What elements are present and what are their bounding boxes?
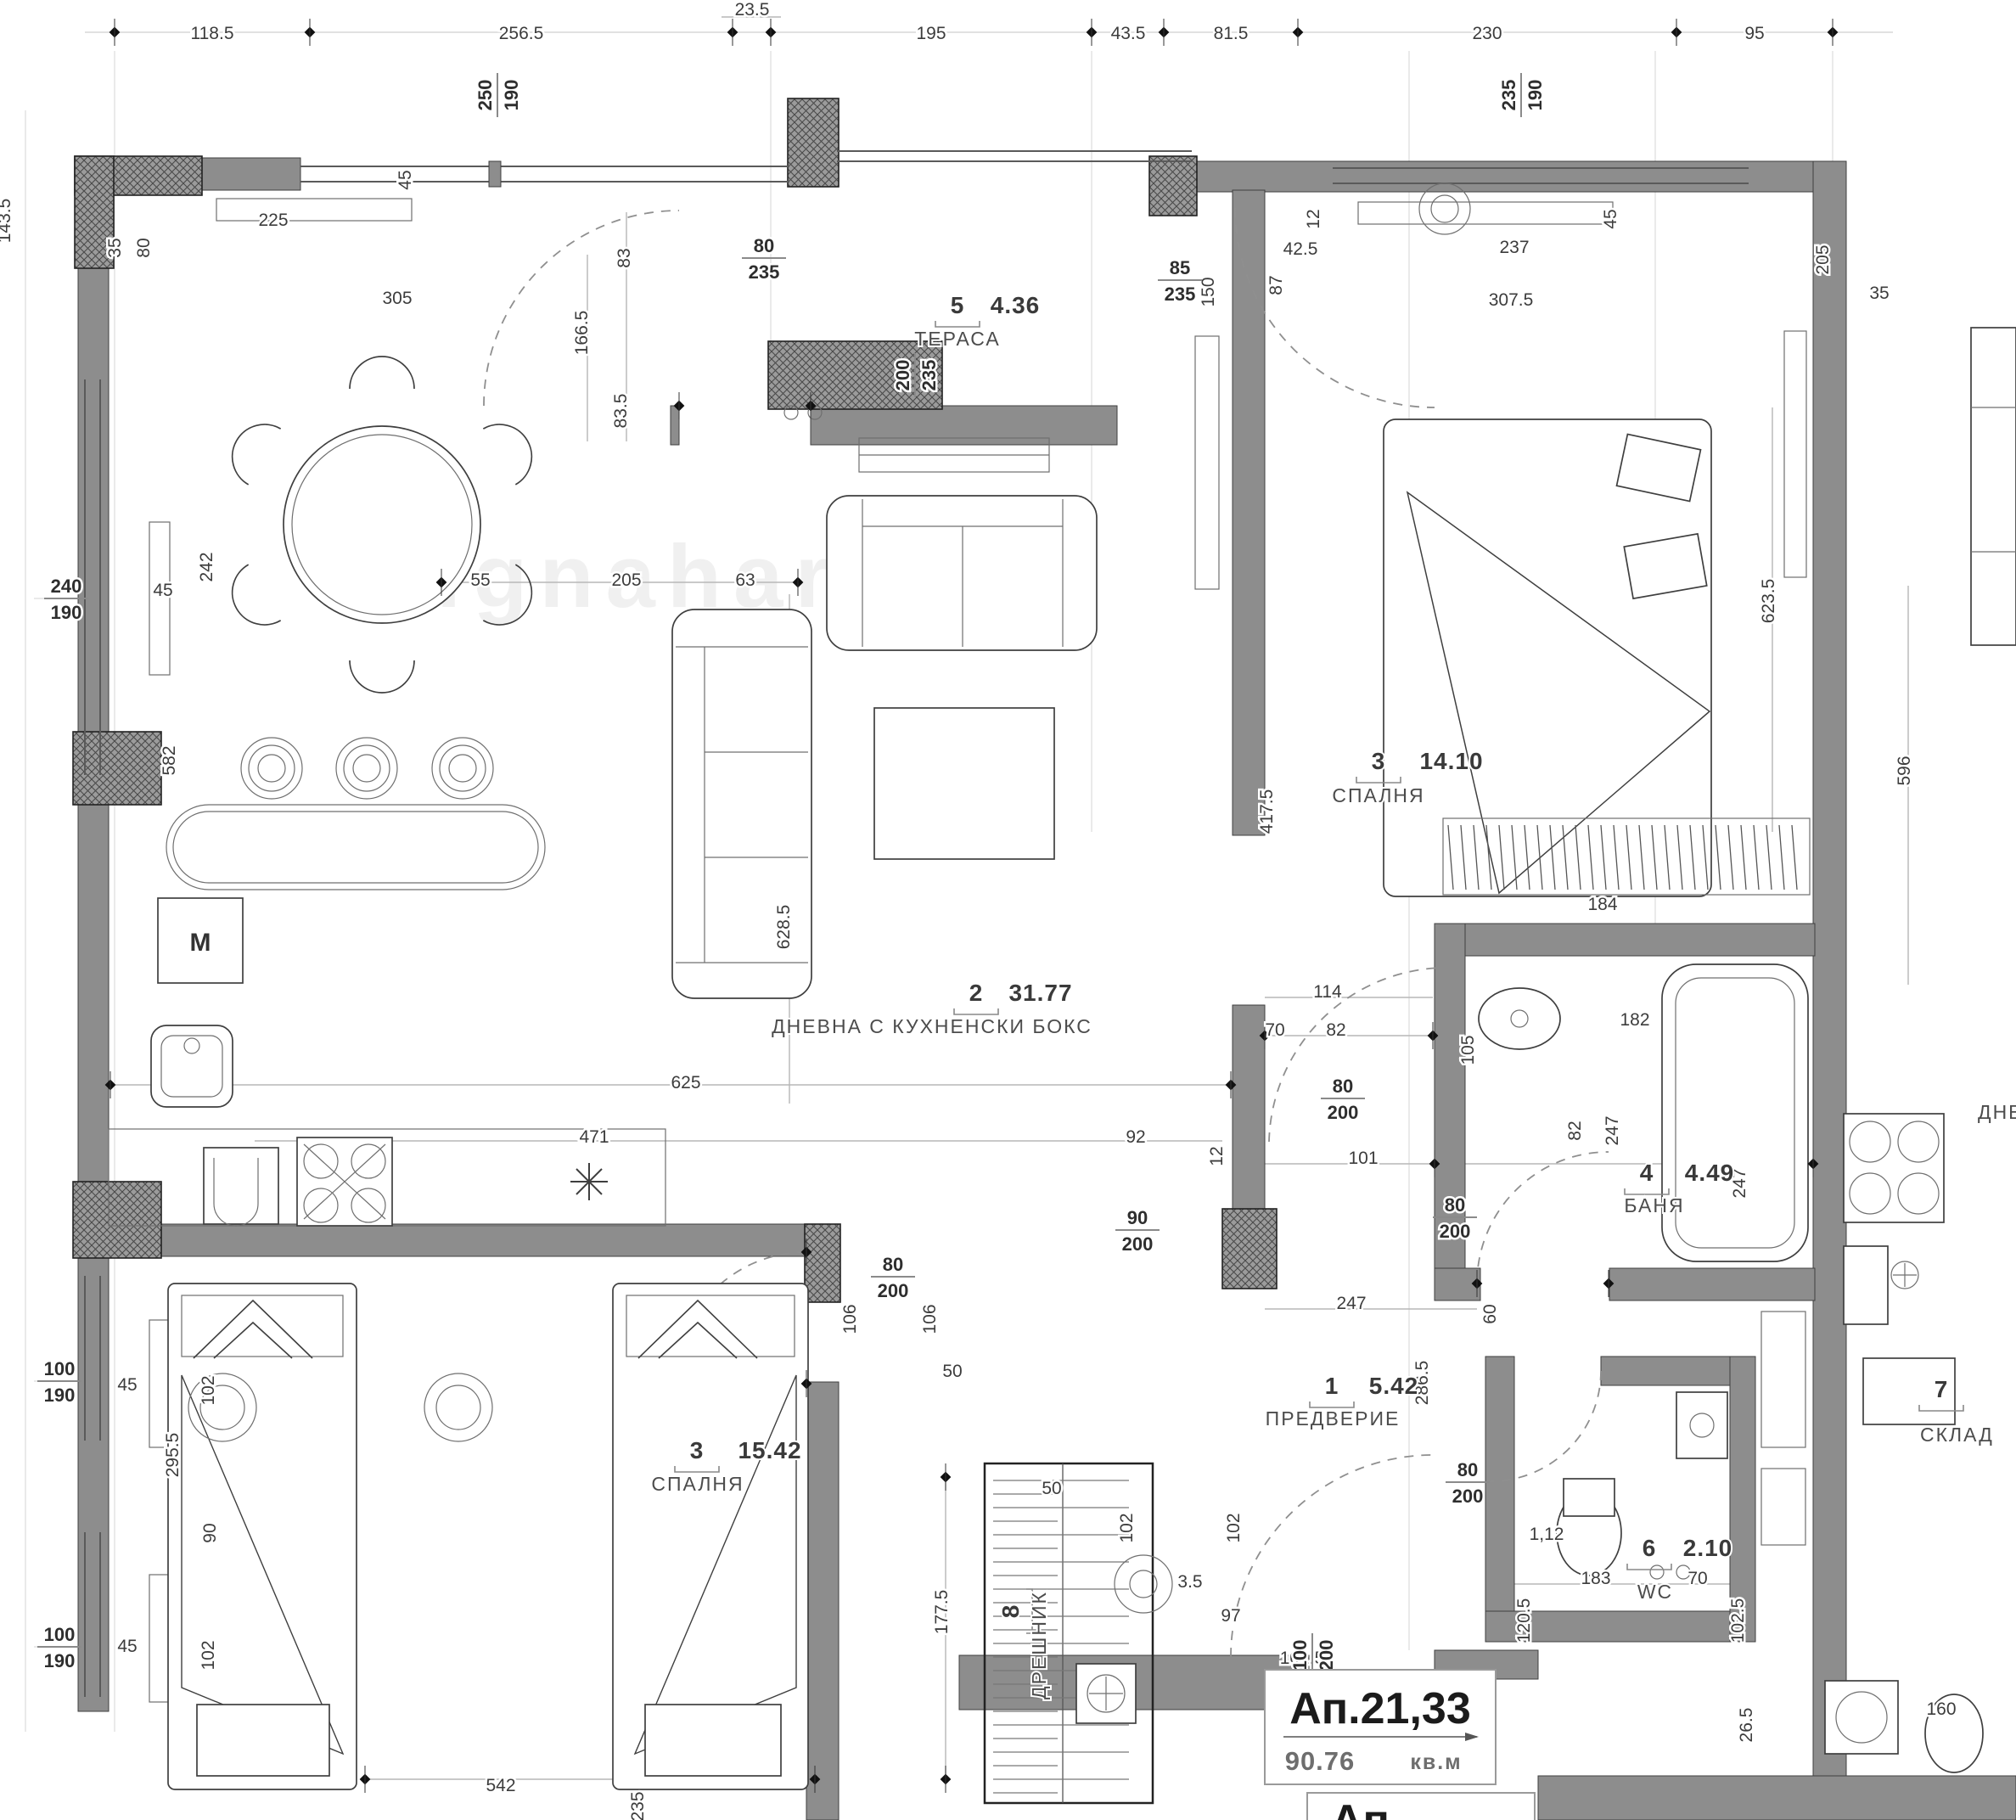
dimension-label: 102 [1224, 1513, 1244, 1542]
opening-size-label: 100190 [37, 1624, 81, 1671]
room-number: 3 [1372, 748, 1386, 774]
dimension-label: 596 [1895, 756, 1914, 785]
dimension-label: 183 [1581, 1569, 1610, 1588]
floor-plan-drawing: Signahard [0, 0, 2016, 1820]
apartment-area-unit: кв.м [1410, 1750, 1462, 1774]
dimension-label: 82 [1326, 1020, 1345, 1040]
dimension-label: 195 [916, 24, 946, 43]
dimension-label: 230 [1472, 24, 1502, 43]
room-number: 1 [1325, 1373, 1339, 1399]
room-number: 2 [969, 980, 984, 1006]
svg-text:200: 200 [1122, 1233, 1154, 1255]
dimension-label: 235 [628, 1791, 648, 1820]
washing-machine-label: M [190, 929, 211, 957]
svg-text:200: 200 [878, 1280, 909, 1301]
svg-text:240: 240 [51, 576, 82, 597]
room-area: 14.10 [1419, 748, 1483, 774]
svg-text:100: 100 [1289, 1640, 1311, 1671]
dimension-label: 102 [199, 1375, 218, 1405]
svg-text:235: 235 [1165, 284, 1196, 305]
room-label: 231.77ДНЕВНА С КУХНЕНСКИ БОКС [772, 980, 1092, 1037]
apartment-info: Ап.21,33 90.76 кв.м Ап. [1265, 1670, 1535, 1820]
dimension-label: 628.5 [774, 905, 794, 950]
dimension-label: 12 [1207, 1146, 1227, 1166]
dimension-label: 471 [579, 1127, 609, 1147]
dimension-label: 237 [1499, 238, 1529, 257]
dimension-label: 82 [1565, 1121, 1585, 1140]
room-number: 8 [997, 1604, 1024, 1619]
room-label: 54.36ТЕРАСА [914, 292, 1040, 350]
dimension-label: 242 [197, 552, 216, 581]
svg-text:200: 200 [1440, 1221, 1471, 1242]
svg-text:80: 80 [1333, 1076, 1353, 1097]
dimension-label: 92 [1126, 1127, 1145, 1147]
svg-text:190: 190 [44, 1385, 76, 1406]
room-name: СПАЛНЯ [1332, 784, 1424, 806]
dimension-label: 247 [1603, 1115, 1622, 1145]
dimension-label: 55 [470, 570, 490, 590]
dimension-label: 105 [1458, 1035, 1478, 1064]
dimension-label: 35 [105, 238, 125, 257]
svg-text:80: 80 [1457, 1459, 1478, 1480]
room-label: ДНЕВНА [1978, 1101, 2016, 1123]
room-area: 4.36 [991, 292, 1041, 318]
apartment-area: 90.76 [1285, 1746, 1356, 1776]
floor-plan-canvas: Signahard [0, 0, 2016, 1820]
room-name: ПРЕДВЕРИЕ [1266, 1407, 1401, 1430]
dimension-label: 417.5 [1257, 789, 1277, 834]
room-area: 5.42 [1369, 1373, 1419, 1399]
svg-text:190: 190 [51, 602, 82, 623]
room-number: 6 [1643, 1535, 1657, 1561]
svg-text:200: 200 [1316, 1640, 1337, 1671]
dimension-label: 95 [1744, 24, 1764, 43]
dimension-label: 87 [1266, 275, 1286, 295]
dimension-label: 83.5 [611, 394, 631, 429]
dimension-label: 205 [611, 570, 641, 590]
opening-size-label: 235190 [1498, 73, 1546, 117]
dimension-label: 120.5 [1514, 1598, 1534, 1643]
dimension-label: 106 [840, 1304, 860, 1334]
dimension-label: 177.5 [932, 1590, 952, 1635]
room-name: ДНЕВНА С КУХНЕНСКИ БОКС [772, 1015, 1092, 1037]
dimension-label: 182 [1620, 1010, 1649, 1030]
dimension-label: 80 [134, 238, 154, 257]
dimension-label: 582 [160, 745, 179, 775]
svg-text:100: 100 [44, 1624, 76, 1645]
opening-size-label: 90200 [1115, 1207, 1160, 1255]
opening-size-label: 240190 [44, 576, 88, 623]
dimension-label: 50 [1042, 1479, 1061, 1498]
room-number: 7 [1935, 1376, 1949, 1402]
dimension-label: 83 [615, 248, 634, 267]
room-name: ДРЕШНИК [1028, 1591, 1050, 1699]
next-apartment-number-partial: Ап. [1331, 1796, 1401, 1820]
dimension-label: 307.5 [1489, 290, 1534, 310]
dimension-label: 305 [382, 289, 412, 308]
dimension-label: 35 [1869, 284, 1889, 303]
dimension-label: 97 [1221, 1606, 1240, 1626]
svg-text:235: 235 [1498, 80, 1519, 111]
room-number: 4 [1640, 1160, 1654, 1186]
svg-text:200: 200 [1452, 1486, 1484, 1507]
dimension-label: 114 [1313, 982, 1342, 1002]
dimension-label: 50 [942, 1362, 962, 1381]
room-area: 15.42 [738, 1437, 801, 1463]
dimension-label: 70 [1687, 1569, 1707, 1588]
dimension-label: 102 [1117, 1513, 1137, 1542]
opening-size-label: 250190 [475, 73, 522, 117]
opening-size-label: 100190 [37, 1358, 81, 1406]
dimension-label: 23.5 [735, 0, 770, 20]
dimension-label: 166.5 [572, 311, 592, 356]
svg-text:85: 85 [1170, 257, 1190, 278]
room-name: ДНЕВНА [1978, 1101, 2016, 1123]
dimension-label: 45 [117, 1375, 137, 1395]
dimension-lines [85, 17, 1908, 1783]
room-name: БАНЯ [1624, 1194, 1684, 1216]
opening-size-label: 85235 [1158, 257, 1202, 305]
svg-text:90: 90 [1127, 1207, 1148, 1228]
dimension-label: 625 [671, 1073, 700, 1093]
dimension-label: 295.5 [163, 1433, 183, 1478]
opening-size-label: 80235 [742, 235, 786, 283]
room-name: WC [1637, 1581, 1673, 1603]
svg-text:80: 80 [754, 235, 774, 256]
dimension-label: 160 [1926, 1699, 1956, 1719]
svg-text:80: 80 [1445, 1194, 1465, 1216]
dimension-label: 150 [1199, 277, 1218, 306]
dimension-label: 43.5 [1111, 24, 1146, 43]
svg-text:235: 235 [749, 261, 780, 283]
room-number: 5 [951, 292, 965, 318]
apartment-number: Ап.21,33 [1289, 1684, 1471, 1733]
dimension-label: 256.5 [499, 24, 544, 43]
dimension-label: 26.5 [1737, 1708, 1756, 1743]
svg-text:190: 190 [1525, 80, 1546, 111]
room-label: 15.42ПРЕДВЕРИЕ [1266, 1373, 1419, 1430]
opening-size-label: 200235 [892, 353, 940, 397]
dimension-label: 623.5 [1759, 579, 1778, 624]
dimension-label: 205 [1813, 244, 1833, 274]
dimension-label: 3.5 [1177, 1572, 1202, 1592]
dimension-label: 184 [1587, 895, 1617, 914]
dimension-label: 45 [396, 170, 415, 189]
dimension-label: 12 [1304, 209, 1323, 228]
room-name: СПАЛНЯ [651, 1473, 744, 1495]
room-area: 4.49 [1685, 1160, 1735, 1186]
dimension-label: 45 [153, 581, 172, 600]
dimension-label: 247 [1336, 1294, 1366, 1313]
svg-text:80: 80 [883, 1254, 903, 1275]
dimension-label: 70 [1265, 1020, 1284, 1040]
dimension-label: 45 [1601, 209, 1620, 228]
dimension-label: 81.5 [1214, 24, 1249, 43]
svg-text:235: 235 [918, 360, 940, 391]
room-area: 31.77 [1008, 980, 1072, 1006]
opening-size-label: 80200 [1321, 1076, 1365, 1123]
dimension-label: 101 [1348, 1149, 1378, 1168]
dimension-label: 143.5 [0, 199, 14, 244]
svg-text:200: 200 [892, 360, 913, 391]
dimension-label: 225 [258, 211, 288, 230]
dimension-label: 45 [117, 1637, 137, 1656]
dimension-label: 106 [920, 1304, 940, 1334]
svg-text:100: 100 [44, 1358, 76, 1379]
svg-text:190: 190 [44, 1650, 76, 1671]
dimension-label: 1,12 [1530, 1525, 1564, 1544]
room-name: СКЛАД [1920, 1424, 1994, 1446]
dimension-label: 542 [486, 1776, 515, 1795]
dimension-label: 63 [735, 570, 755, 590]
svg-text:190: 190 [501, 80, 522, 111]
room-label: 62.10WC [1627, 1535, 1732, 1603]
dimension-label: 90 [200, 1523, 220, 1542]
dimension-label: 118.5 [191, 24, 234, 43]
room-name: ТЕРАСА [914, 328, 1000, 350]
dimension-label: 60 [1480, 1304, 1500, 1323]
svg-text:200: 200 [1328, 1102, 1359, 1123]
opening-size-label: 80200 [871, 1254, 915, 1301]
room-number: 3 [690, 1437, 705, 1463]
dimension-label: 102 [199, 1640, 218, 1670]
room-area: 2.10 [1683, 1535, 1733, 1561]
opening-size-label: 80200 [1446, 1459, 1490, 1507]
dimension-label: 102.5 [1728, 1598, 1748, 1643]
dimension-label: 42.5 [1283, 239, 1318, 259]
svg-text:250: 250 [475, 80, 496, 111]
